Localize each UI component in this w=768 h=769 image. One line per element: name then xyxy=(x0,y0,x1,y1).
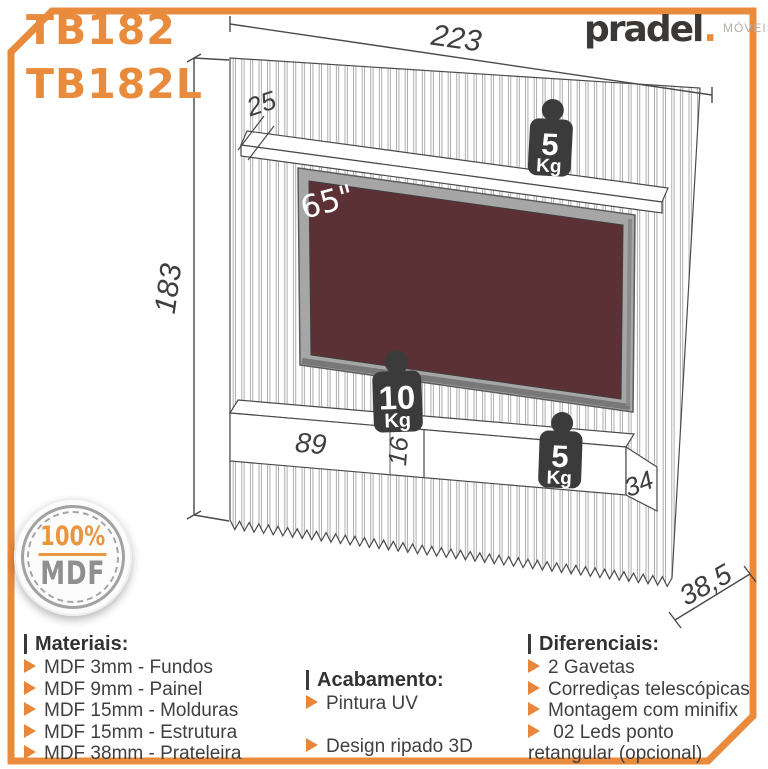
dim-height-label: 183 xyxy=(149,261,189,315)
svg-text:Kg: Kg xyxy=(536,155,562,177)
seal-mdf: MDF xyxy=(39,556,107,591)
model-code-2: TB182L xyxy=(26,64,203,105)
bullet-triangle-icon xyxy=(24,724,36,738)
bullet-triangle-icon xyxy=(24,659,36,673)
list-item: 2 Gavetas xyxy=(528,657,762,679)
materials-title: Materiais: xyxy=(24,634,296,654)
differentials-title: Diferenciais: xyxy=(528,634,762,654)
list-item: MDF 3mm - Fundos xyxy=(24,657,296,679)
bullet-triangle-icon xyxy=(528,681,540,695)
dim-width-label: 223 xyxy=(428,19,483,59)
dim-base-depth-label: 38,5 xyxy=(674,558,737,612)
bullet-triangle-icon xyxy=(24,702,36,716)
seal-percent: 100% xyxy=(39,523,107,555)
model-code-1: TB182 xyxy=(26,10,203,51)
list-item: MDF 9mm - Painel xyxy=(24,679,296,701)
spec-sheet: 223 183 25 65" 89 16 xyxy=(0,0,768,769)
svg-text:Kg: Kg xyxy=(546,468,572,490)
list-item: Pintura UV xyxy=(306,693,520,715)
list-item: Montagem com minifix xyxy=(528,700,762,722)
dim-drawer-height-label: 16 xyxy=(382,435,414,466)
model-codes: TB182 TB182L xyxy=(26,10,203,105)
finish-section: Acabamento: Pintura UVDesign ripado 3D xyxy=(306,670,520,757)
mdf-seal: 100% MDF xyxy=(14,498,132,616)
finish-title: Acabamento: xyxy=(306,670,520,690)
list-item: MDF 15mm - Estrutura xyxy=(24,722,296,744)
list-item: 02 Leds ponto retangular (opcional) xyxy=(528,722,762,765)
list-item: MDF 38mm - Prateleira xyxy=(24,743,296,765)
finish-list: Pintura UVDesign ripado 3D xyxy=(306,693,520,757)
differentials-section: Diferenciais: 2 GavetasCorrediças telesc… xyxy=(528,634,762,765)
bullet-triangle-icon xyxy=(24,681,36,695)
svg-text:Kg: Kg xyxy=(384,410,411,433)
dim-drawer-width-label: 89 xyxy=(294,427,328,461)
materials-list: MDF 3mm - FundosMDF 9mm - PainelMDF 15mm… xyxy=(24,657,296,765)
dim-height xyxy=(187,54,229,521)
bullet-triangle-icon xyxy=(528,659,540,673)
brand-dot: . xyxy=(703,12,717,48)
list-item: Corrediças telescópicas xyxy=(528,679,762,701)
bullet-triangle-icon xyxy=(306,738,318,752)
materials-section: Materiais: MDF 3mm - FundosMDF 9mm - Pai… xyxy=(24,634,296,765)
differentials-list: 2 GavetasCorrediças telescópicasMontagem… xyxy=(528,657,762,765)
list-item: Design ripado 3D xyxy=(306,736,520,758)
bullet-triangle-icon xyxy=(528,702,540,716)
bullet-triangle-icon xyxy=(528,724,540,738)
brand-logo: pradel . MÓVEIS xyxy=(584,12,768,48)
brand-suffix: MÓVEIS xyxy=(723,21,768,35)
bullet-triangle-icon xyxy=(24,745,36,759)
list-item: MDF 15mm - Molduras xyxy=(24,700,296,722)
brand-name: pradel xyxy=(584,12,702,48)
bullet-triangle-icon xyxy=(306,695,318,709)
